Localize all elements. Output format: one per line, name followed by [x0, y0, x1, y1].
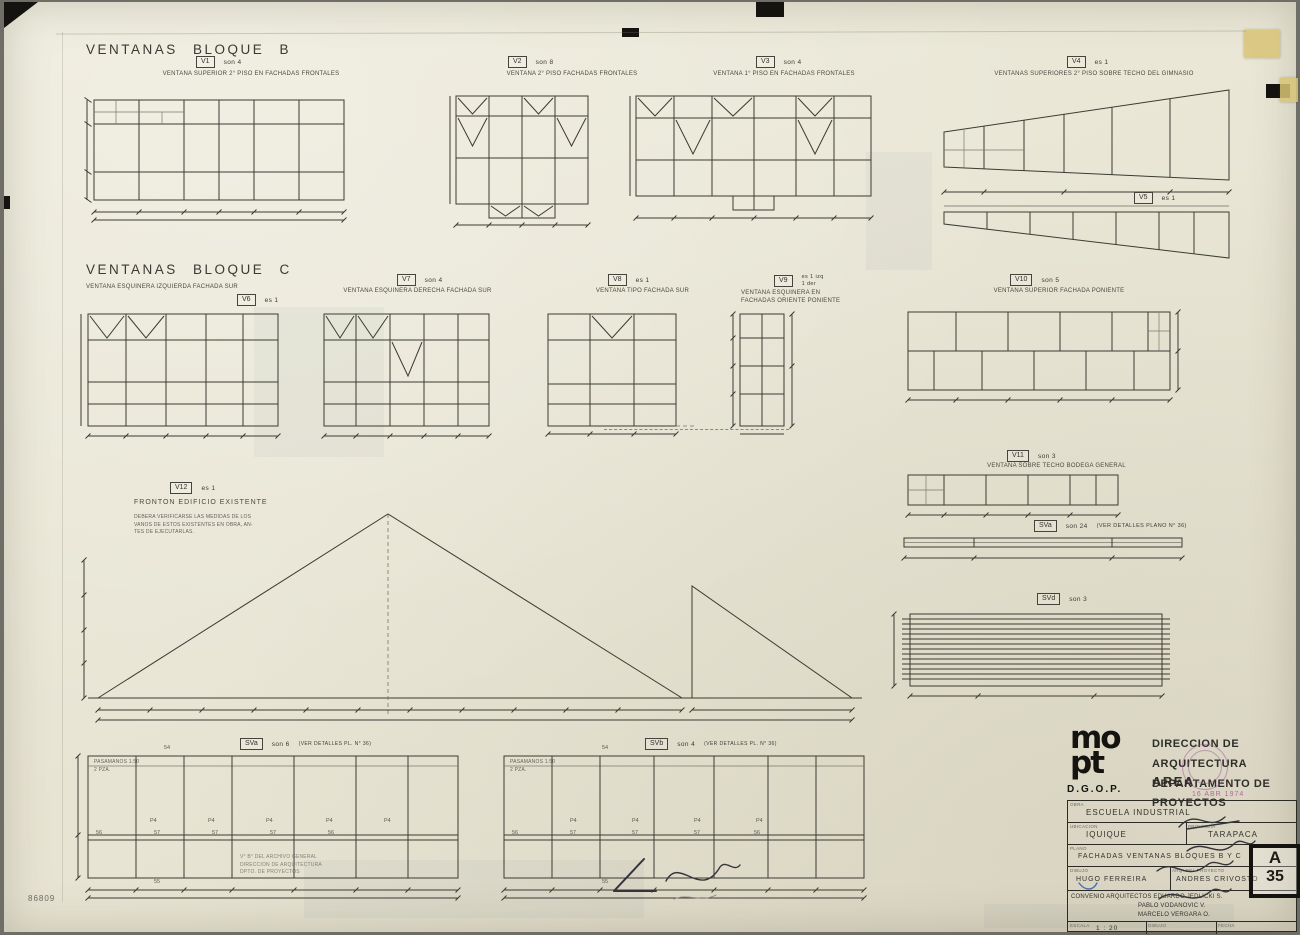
sva6-pane-code: P4 [266, 818, 273, 824]
archive-stamp-text: V° B° DEL ARCHIVO GENERAL DIRECCION DE A… [240, 854, 380, 877]
v5-header: V5 es 1 [1134, 192, 1175, 204]
v8-tag: V8 [608, 274, 627, 286]
v10-caption: VENTANA SUPERIOR FACHADA PONIENTE [934, 287, 1184, 295]
v10-drawing [896, 300, 1186, 412]
v7-count: son 4 [425, 277, 443, 284]
scanned-sheet-stage: VENTANAS BLOQUE B VENTANAS BLOQUE C V1 s… [0, 0, 1300, 935]
v1-tag: V1 [196, 56, 215, 68]
v1-drawing [82, 90, 362, 225]
edge-tape-mark [4, 196, 10, 209]
round-stamp-inner [1188, 750, 1222, 784]
svb4-mid-dim: 57 [694, 830, 700, 836]
mopt-logo: mo pt [1070, 726, 1120, 776]
sva6-pane-code: P4 [150, 818, 157, 824]
v7-tag: V7 [397, 274, 416, 286]
svb4-mid-dim: 56 [754, 830, 760, 836]
v3-tag: V3 [756, 56, 775, 68]
archive-line-2: DIRECCION DE ARQUITECTURA [240, 862, 380, 870]
date-stamp: 16 ABR 1974 [1192, 791, 1244, 798]
pasamanos-note-qty: 2 PZA. [510, 767, 526, 773]
v8-count: es 1 [636, 277, 650, 284]
v10-count: son 5 [1041, 277, 1059, 284]
v3-header: V3 son 4 [756, 56, 801, 68]
v2-count: son 8 [536, 59, 554, 66]
v11-count: son 3 [1038, 453, 1056, 460]
sva6-mid-dim: 57 [270, 830, 276, 836]
v2-drawing [446, 84, 601, 232]
v4-header: V4 es 1 [1067, 56, 1108, 68]
v11-tag: V11 [1007, 450, 1029, 462]
section-title-bloque-b: VENTANAS BLOQUE B [86, 42, 291, 57]
pasamanos-note: PASAMANOS 1.50 [510, 759, 555, 765]
v12-header: V12 es 1 [170, 482, 215, 494]
v3-count: son 4 [784, 59, 802, 66]
sva6-pane-code: P4 [384, 818, 391, 824]
v7-drawing [312, 304, 502, 444]
paper-edge-line [56, 30, 1246, 34]
v12-count: es 1 [201, 485, 215, 492]
svb4-mid-dim: 57 [632, 830, 638, 836]
sva6-pane-note: PASAMANOS 1.502 PZA. [94, 759, 164, 774]
sva24-caption: (VER DETALLES PLANO N° 36) [1097, 523, 1187, 529]
svb4-mid-dim: 57 [570, 830, 576, 836]
v9-tag: V9 [774, 275, 793, 287]
yellow-tape [1244, 30, 1280, 58]
v10-header: V10 son 5 [1010, 274, 1059, 286]
v4-tag: V4 [1067, 56, 1086, 68]
v12-tag: V12 [170, 482, 192, 494]
v1-caption: VENTANA SUPERIOR 2° PISO EN FACHADAS FRO… [106, 70, 396, 78]
sva6-mid-dim: 57 [154, 830, 160, 836]
svb4-mid-dim: 56 [512, 830, 518, 836]
svb4-pane-code: P4 [570, 818, 577, 824]
v5-count: es 1 [1162, 195, 1176, 202]
v11-drawing [896, 467, 1136, 522]
archive-line-1: V° B° DEL ARCHIVO GENERAL [240, 854, 380, 862]
v8-drawing [536, 304, 696, 444]
sva24-count: son 24 [1066, 523, 1088, 530]
v1-header: V1 son 4 [196, 56, 241, 68]
v5-drawing [932, 204, 1242, 266]
v8-header: V8 es 1 [608, 274, 649, 286]
pasamanos-note-qty: 2 PZA. [94, 767, 110, 773]
svb4-pane-code: P4 [694, 818, 701, 824]
sheet-pencil-number: 86809 [28, 894, 55, 903]
v11-header: V11 son 3 [1007, 450, 1056, 462]
v3-caption: VENTANA 1° PISO EN FACHADAS FRONTALES [644, 70, 924, 78]
edge-tape-mark [756, 2, 784, 17]
v1-count: son 4 [224, 59, 242, 66]
v6-count: es 1 [265, 297, 279, 304]
sva6-pane-code: P4 [326, 818, 333, 824]
sva6-mid-dim: 56 [96, 830, 102, 836]
v6-drawing [76, 304, 291, 444]
yellow-tape [1280, 78, 1298, 102]
v6-caption: VENTANA ESQUINERA IZQUIERDA FACHADA SUR [86, 283, 306, 291]
v4-count: es 1 [1095, 59, 1109, 66]
svb4-top-dim: 54 [602, 745, 608, 751]
svb4-pane-note: PASAMANOS 1.502 PZA. [510, 759, 580, 774]
pasamanos-note: PASAMANOS 1.50 [94, 759, 139, 765]
handwritten-marks [604, 847, 744, 907]
v12-fronton-drawing [70, 500, 880, 730]
v2-tag: V2 [508, 56, 527, 68]
sva6-mid-dim: 56 [328, 830, 334, 836]
v7-header: V7 son 4 [397, 274, 442, 286]
dgop-label: D.G.O.P. [1067, 784, 1122, 795]
sva6-bottom-dim: 55 [154, 879, 160, 885]
v9-count: es 1 izq 1 der [802, 274, 824, 288]
sva6-top-dim: 54 [164, 745, 170, 751]
paper-edge-line [62, 32, 63, 902]
v4-drawing [932, 80, 1242, 202]
svd-drawing [886, 602, 1196, 710]
corner-tape-mark [4, 2, 38, 28]
v3-drawing [626, 84, 881, 226]
sva24-drawing [890, 530, 1200, 568]
v8-caption: VENTANA TIPO FACHADA SUR [560, 287, 725, 295]
v10-tag: V10 [1010, 274, 1032, 286]
v2-header: V2 son 8 [508, 56, 553, 68]
drawing-sheet: VENTANAS BLOQUE B VENTANAS BLOQUE C V1 s… [4, 2, 1296, 932]
sva6-mid-dim: 57 [212, 830, 218, 836]
v5-tag: V5 [1134, 192, 1153, 204]
svb4-pane-code: P4 [632, 818, 639, 824]
v9-drawing [726, 304, 806, 444]
title-block-signatures [1067, 799, 1297, 932]
section-title-bloque-c: VENTANAS BLOQUE C [86, 262, 292, 277]
v9-caption: VENTANA ESQUINERA EN FACHADAS ORIENTE PO… [741, 289, 871, 305]
v9-header: V9 es 1 izq 1 der [774, 274, 824, 288]
archive-line-3: DPTO. DE PROYECTOS [240, 869, 380, 877]
sva6-pane-code: P4 [208, 818, 215, 824]
v4-caption: VENTANAS SUPERIORES 2° PISO SOBRE TECHO … [939, 70, 1249, 78]
v7-caption: VENTANA ESQUINERA DERECHA FACHADA SUR [320, 287, 515, 295]
svb4-pane-code: P4 [756, 818, 763, 824]
